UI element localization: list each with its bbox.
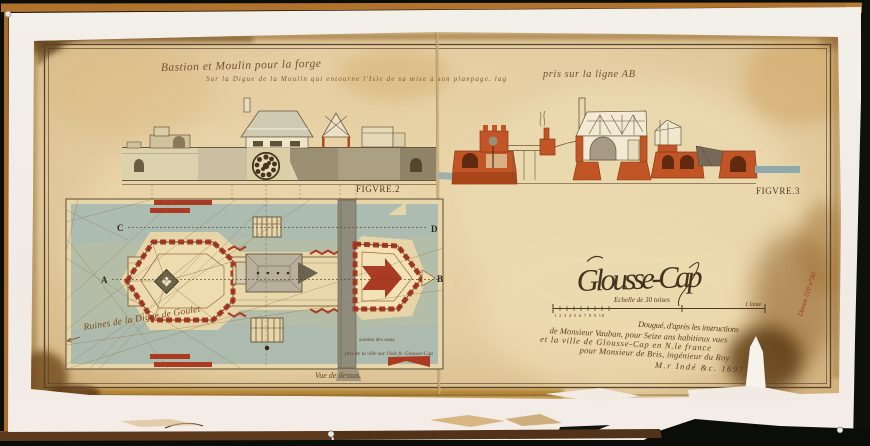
svg-text:1 2 3 4 5 6 7 8 9 10: 1 2 3 4 5 6 7 8 9 10 (554, 313, 605, 318)
svg-text:Sur la Digue de la Moulin qui: Sur la Digue de la Moulin qui entourne l… (206, 75, 507, 83)
svg-text:1 lieue: 1 lieue (745, 302, 761, 308)
svg-text:Echelle de 30 toises: Echelle de 30 toises (613, 296, 670, 304)
svg-text:A: A (101, 275, 108, 285)
svg-text:D: D (431, 224, 438, 234)
svg-text:Vue de dessus.: Vue de dessus. (315, 371, 361, 380)
svg-text:somme des eaux: somme des eaux (359, 337, 395, 343)
svg-text:FIGVRE.2: FIGVRE.2 (356, 184, 400, 194)
svg-text:pris de la ville sur l'Isle fr: pris de la ville sur l'Isle fr. Glousse-… (344, 350, 433, 357)
svg-text:pris sur la ligne AB: pris sur la ligne AB (542, 69, 636, 80)
svg-text:FIGVRE.3: FIGVRE.3 (756, 186, 800, 196)
svg-text:Glousse-Cap: Glousse-Cap (576, 259, 703, 298)
svg-text:B: B (437, 274, 443, 284)
svg-text:C: C (117, 223, 124, 233)
